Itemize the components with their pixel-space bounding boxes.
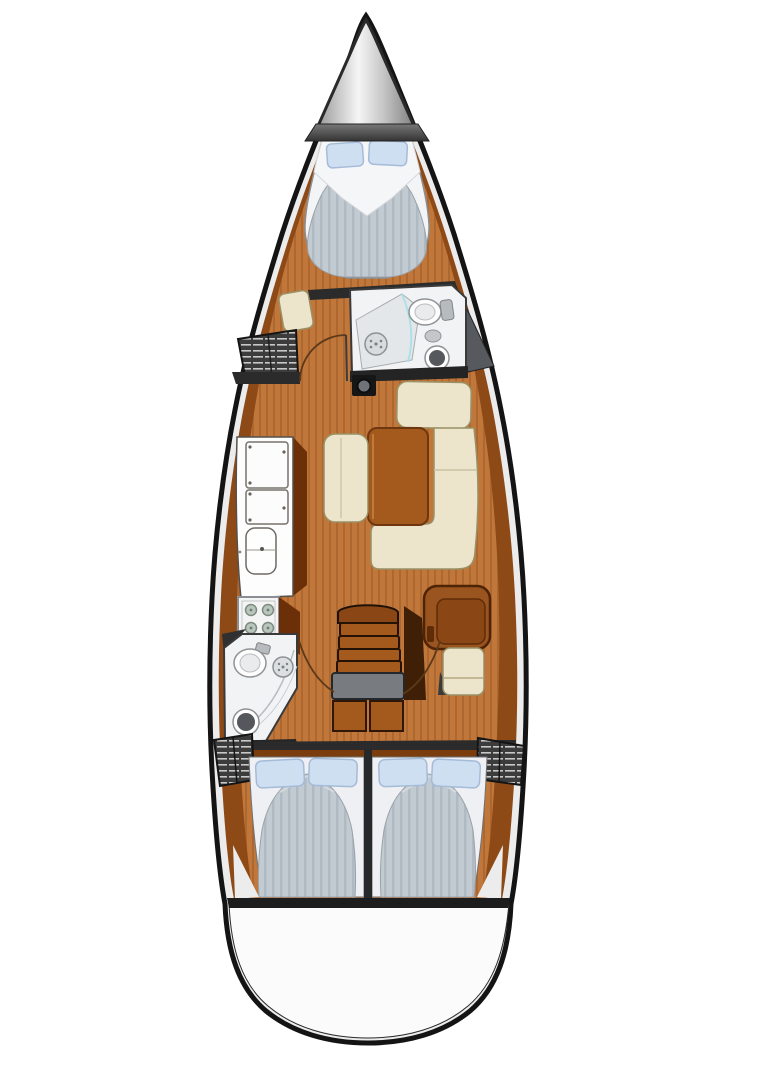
toilet-seat — [415, 304, 435, 320]
port-bed-pillow-right — [309, 758, 358, 787]
galley — [236, 437, 307, 655]
salon-table — [368, 428, 428, 525]
chart-table-handle — [427, 626, 434, 642]
galley-faucet — [260, 547, 264, 551]
toilet-tank — [440, 299, 455, 320]
v-berth-pillow-left — [326, 142, 364, 168]
floor-hatch-left — [333, 701, 366, 731]
galley-locker-2 — [246, 490, 288, 524]
forward-cabin-seat — [278, 290, 314, 333]
settee-forward-bench — [397, 381, 472, 428]
v-berth-pillow-right — [368, 140, 407, 166]
transom-line — [227, 898, 510, 908]
anchor-locker-bulkhead — [305, 124, 429, 141]
port-bed-pillow-left — [255, 759, 304, 788]
nav-seat — [443, 648, 484, 695]
aft-hanging-locker-port — [214, 734, 254, 786]
companionway-steps — [337, 623, 401, 673]
head-sink-basin — [429, 350, 445, 366]
forward-bulkhead — [232, 372, 300, 384]
aft-cabin-port-bed — [249, 757, 364, 897]
floorplan-svg — [0, 0, 763, 1080]
chart-table — [437, 599, 485, 644]
stairs-top — [338, 605, 398, 623]
yacht-floorplan — [0, 0, 763, 1080]
head-pump — [425, 330, 441, 342]
aft-cabin-divider — [364, 750, 372, 898]
v-berth-cabin — [305, 140, 429, 278]
salon-bench — [324, 434, 368, 522]
bow-cone — [318, 20, 414, 126]
mast-step — [352, 375, 376, 396]
starboard-bed-pillow-left — [379, 758, 428, 787]
galley-shadow — [293, 437, 307, 596]
aft-cabin-starboard-bed — [372, 757, 487, 897]
companionway-base — [332, 673, 404, 699]
starboard-bed-pillow-right — [431, 759, 480, 788]
forward-cabin-door — [346, 335, 347, 381]
floor-hatch-right — [370, 701, 403, 731]
galley-locker-1 — [246, 442, 288, 488]
galley-sink — [246, 528, 276, 574]
